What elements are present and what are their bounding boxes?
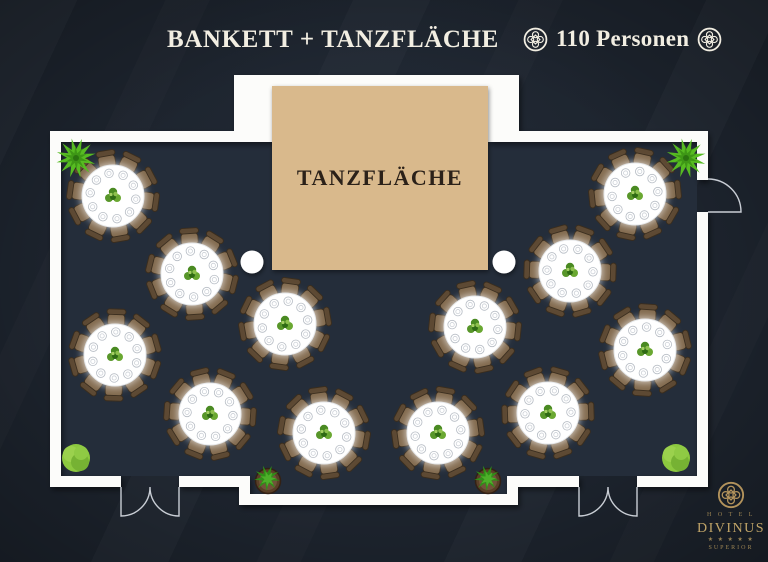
place-setting xyxy=(202,287,211,296)
place-setting xyxy=(186,247,195,256)
place-setting xyxy=(323,451,332,460)
place-setting xyxy=(211,432,220,441)
place-setting xyxy=(640,211,649,220)
place-setting xyxy=(411,432,420,441)
place-setting xyxy=(558,288,567,297)
place-setting xyxy=(584,281,593,290)
capacity-text: 110 Personen xyxy=(556,26,689,52)
place-setting xyxy=(166,278,175,287)
place-setting xyxy=(125,333,134,342)
place-setting xyxy=(284,297,293,306)
logo-hotel-text: H O T E L xyxy=(707,512,755,520)
place-setting xyxy=(214,388,223,397)
place-setting xyxy=(438,406,447,415)
capacity-group: 110 Personen xyxy=(523,26,722,52)
place-setting xyxy=(648,174,657,183)
place-setting xyxy=(626,212,635,221)
logo-name-text: DIVINUS xyxy=(697,520,765,538)
place-setting xyxy=(608,192,617,201)
place-setting xyxy=(611,178,620,187)
celtic-knot-icon xyxy=(523,27,548,52)
place-setting xyxy=(466,300,475,309)
place-setting xyxy=(291,340,300,349)
place-setting xyxy=(124,370,133,379)
place-setting xyxy=(229,411,238,420)
place-setting xyxy=(461,344,470,353)
place-setting xyxy=(113,214,122,223)
place-setting xyxy=(589,268,598,277)
place-setting xyxy=(210,275,219,284)
place-setting xyxy=(521,410,530,419)
hotel-logo-emblem-icon xyxy=(717,481,745,509)
place-setting xyxy=(614,205,623,214)
place-setting xyxy=(110,374,119,383)
column xyxy=(241,251,264,274)
place-setting xyxy=(330,408,339,417)
place-setting xyxy=(488,338,497,347)
place-setting xyxy=(297,303,306,312)
place-setting xyxy=(105,169,114,178)
place-setting xyxy=(454,439,463,448)
place-setting xyxy=(559,245,568,254)
place-setting xyxy=(526,423,535,432)
place-setting xyxy=(297,425,306,434)
place-setting xyxy=(413,418,422,427)
place-setting xyxy=(92,176,101,185)
place-setting xyxy=(176,289,185,298)
place-setting xyxy=(89,343,98,352)
place-setting xyxy=(574,245,583,254)
place-setting xyxy=(655,328,664,337)
place-setting xyxy=(491,311,500,320)
place-setting xyxy=(299,439,308,448)
place-setting xyxy=(265,336,274,345)
place-setting xyxy=(186,422,195,431)
place-setting xyxy=(537,431,546,440)
wall-segment xyxy=(239,494,518,505)
place-setting xyxy=(536,387,545,396)
place-setting xyxy=(456,425,465,434)
place-setting xyxy=(340,419,349,428)
place-setting xyxy=(548,253,557,262)
wall-segment xyxy=(697,212,708,487)
place-setting xyxy=(642,323,651,332)
place-setting xyxy=(119,171,128,180)
wall-segment xyxy=(234,75,519,86)
place-setting xyxy=(618,351,627,360)
place-setting xyxy=(301,330,310,339)
place-setting xyxy=(626,363,635,372)
column xyxy=(493,251,516,274)
place-setting xyxy=(629,326,638,335)
place-setting xyxy=(480,302,489,311)
place-setting xyxy=(133,344,142,353)
place-setting xyxy=(653,365,662,374)
place-setting xyxy=(562,395,571,404)
place-setting xyxy=(112,328,121,337)
place-setting xyxy=(223,424,232,433)
double-door xyxy=(579,487,637,516)
bush-plant xyxy=(62,444,90,472)
place-setting xyxy=(547,280,556,289)
single-door xyxy=(708,179,741,212)
place-setting xyxy=(430,451,439,460)
place-setting xyxy=(550,387,559,396)
wall-segment xyxy=(50,131,245,142)
place-setting xyxy=(165,264,174,273)
logo-tier-text: SUPERIOR xyxy=(708,545,753,553)
place-setting xyxy=(543,266,552,275)
place-setting xyxy=(303,316,312,325)
place-setting xyxy=(417,445,426,454)
wall-segment xyxy=(50,476,121,487)
wall-segment xyxy=(50,131,61,487)
place-setting xyxy=(475,345,484,354)
celtic-knot-icon xyxy=(697,27,722,52)
place-setting xyxy=(662,354,671,363)
place-setting xyxy=(454,307,463,316)
place-setting xyxy=(260,310,269,319)
place-setting xyxy=(129,181,138,190)
place-setting xyxy=(173,252,182,261)
place-setting xyxy=(86,188,95,197)
place-setting xyxy=(131,195,140,204)
floor-plan xyxy=(0,0,768,562)
place-setting xyxy=(567,408,576,417)
place-setting xyxy=(99,212,108,221)
place-setting xyxy=(200,387,209,396)
place-setting xyxy=(525,396,534,405)
dance-floor-label: TANZFLÄCHE xyxy=(272,86,488,270)
place-setting xyxy=(585,254,594,263)
place-setting xyxy=(654,187,663,196)
place-setting xyxy=(189,293,198,302)
place-setting xyxy=(448,320,457,329)
place-setting xyxy=(336,445,345,454)
place-setting xyxy=(563,422,572,431)
place-setting xyxy=(277,342,286,351)
place-setting xyxy=(663,340,672,349)
place-setting xyxy=(88,202,97,211)
place-setting xyxy=(183,408,192,417)
place-setting xyxy=(572,289,581,298)
place-setting xyxy=(635,167,644,176)
place-setting xyxy=(309,449,318,458)
place-setting xyxy=(270,299,279,308)
wall-segment xyxy=(508,131,708,142)
place-setting xyxy=(304,412,313,421)
place-setting xyxy=(209,261,218,270)
wall-segment xyxy=(507,476,579,487)
place-setting xyxy=(98,332,107,341)
place-setting xyxy=(494,325,503,334)
place-setting xyxy=(619,337,628,346)
place-setting xyxy=(197,431,206,440)
place-setting xyxy=(451,334,460,343)
place-setting xyxy=(258,324,267,333)
place-setting xyxy=(639,369,648,378)
place-setting xyxy=(621,169,630,178)
place-setting xyxy=(552,430,561,439)
bush-plant xyxy=(662,444,690,472)
hotel-logo: H O T E L DIVINUS ★ ★ ★ ★ ★ SUPERIOR xyxy=(689,481,768,552)
logo-stars: ★ ★ ★ ★ ★ xyxy=(708,537,754,545)
place-setting xyxy=(188,395,197,404)
place-setting xyxy=(424,408,433,417)
place-setting xyxy=(225,398,234,407)
double-door xyxy=(121,487,179,516)
place-setting xyxy=(444,449,453,458)
place-setting xyxy=(125,208,134,217)
page-title: BANKETT + TANZFLÄCHE xyxy=(167,26,499,54)
place-setting xyxy=(651,201,660,210)
place-setting xyxy=(342,433,351,442)
place-setting xyxy=(316,406,325,415)
place-setting xyxy=(89,357,98,366)
place-setting xyxy=(200,250,209,259)
place-setting xyxy=(132,359,141,368)
place-setting xyxy=(450,413,459,422)
place-setting xyxy=(97,369,106,378)
